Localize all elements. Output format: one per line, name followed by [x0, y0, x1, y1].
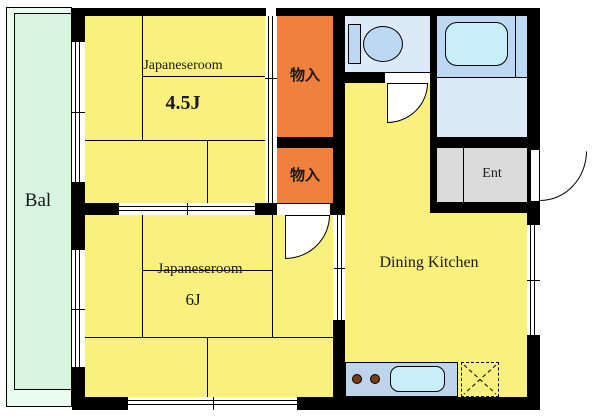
- tatami-line: [142, 76, 265, 77]
- sliding-door-closet-4_5: [265, 16, 277, 203]
- tatami-line: [85, 140, 265, 141]
- washroom-boundary-line: [437, 77, 527, 78]
- wall-closet-right: [333, 8, 345, 215]
- refrigerator-cross-icon: [462, 363, 498, 396]
- wall-top: [72, 8, 540, 16]
- room1-name-label: Japaneseroom: [103, 58, 263, 74]
- wall-6j-dk-lower: [333, 320, 345, 397]
- closet-door-opening: [277, 203, 330, 215]
- wall-entrance-bottom: [430, 202, 540, 213]
- toilet-bowl: [363, 26, 403, 62]
- stove-burner: [352, 374, 362, 384]
- front-door-swing: [540, 151, 587, 201]
- closet-top-label: 物入: [277, 64, 333, 85]
- sliding-door-6j-dk: [334, 215, 345, 320]
- dining-kitchen-label: Dining Kitchen: [349, 254, 509, 272]
- balcony-label: Bal: [10, 190, 66, 212]
- window-left-upper: [72, 42, 85, 182]
- closet-bottom-label: 物入: [277, 164, 333, 185]
- window-bottom: [128, 397, 297, 410]
- wall-entrance-left: [430, 148, 437, 202]
- kitchen-sink: [390, 366, 445, 392]
- window-left-lower: [72, 250, 85, 367]
- tatami-line: [85, 337, 333, 338]
- refrigerator-space: [461, 362, 499, 397]
- bathroom-partition-line: [515, 16, 516, 77]
- room1-size-label: 4.5J: [123, 92, 243, 115]
- toilet-door-opening: [385, 72, 430, 83]
- wall-bath-bottom: [430, 137, 540, 148]
- wall-toilet-bottom: [345, 72, 385, 83]
- entrance-label: Ent: [463, 166, 521, 182]
- tatami-line: [207, 337, 208, 397]
- front-door-leaf: [530, 149, 540, 202]
- sliding-partition-4_5-6j: [119, 203, 255, 215]
- window-right: [527, 225, 540, 335]
- bathtub: [445, 22, 508, 66]
- tatami-line: [207, 140, 208, 203]
- room2-size-label: 6J: [133, 290, 253, 310]
- wall-top-gap: [266, 8, 276, 16]
- wall-bath-left: [430, 8, 437, 148]
- room2-name-label: Japaneseroom: [120, 261, 280, 278]
- tatami-line: [142, 16, 143, 140]
- floor-plan: Bal Japaneseroom 4.5J 物入 物入 Japaneseroom…: [0, 0, 600, 419]
- washroom: [437, 77, 527, 137]
- toilet-tank: [348, 24, 361, 64]
- stove-burner: [370, 374, 380, 384]
